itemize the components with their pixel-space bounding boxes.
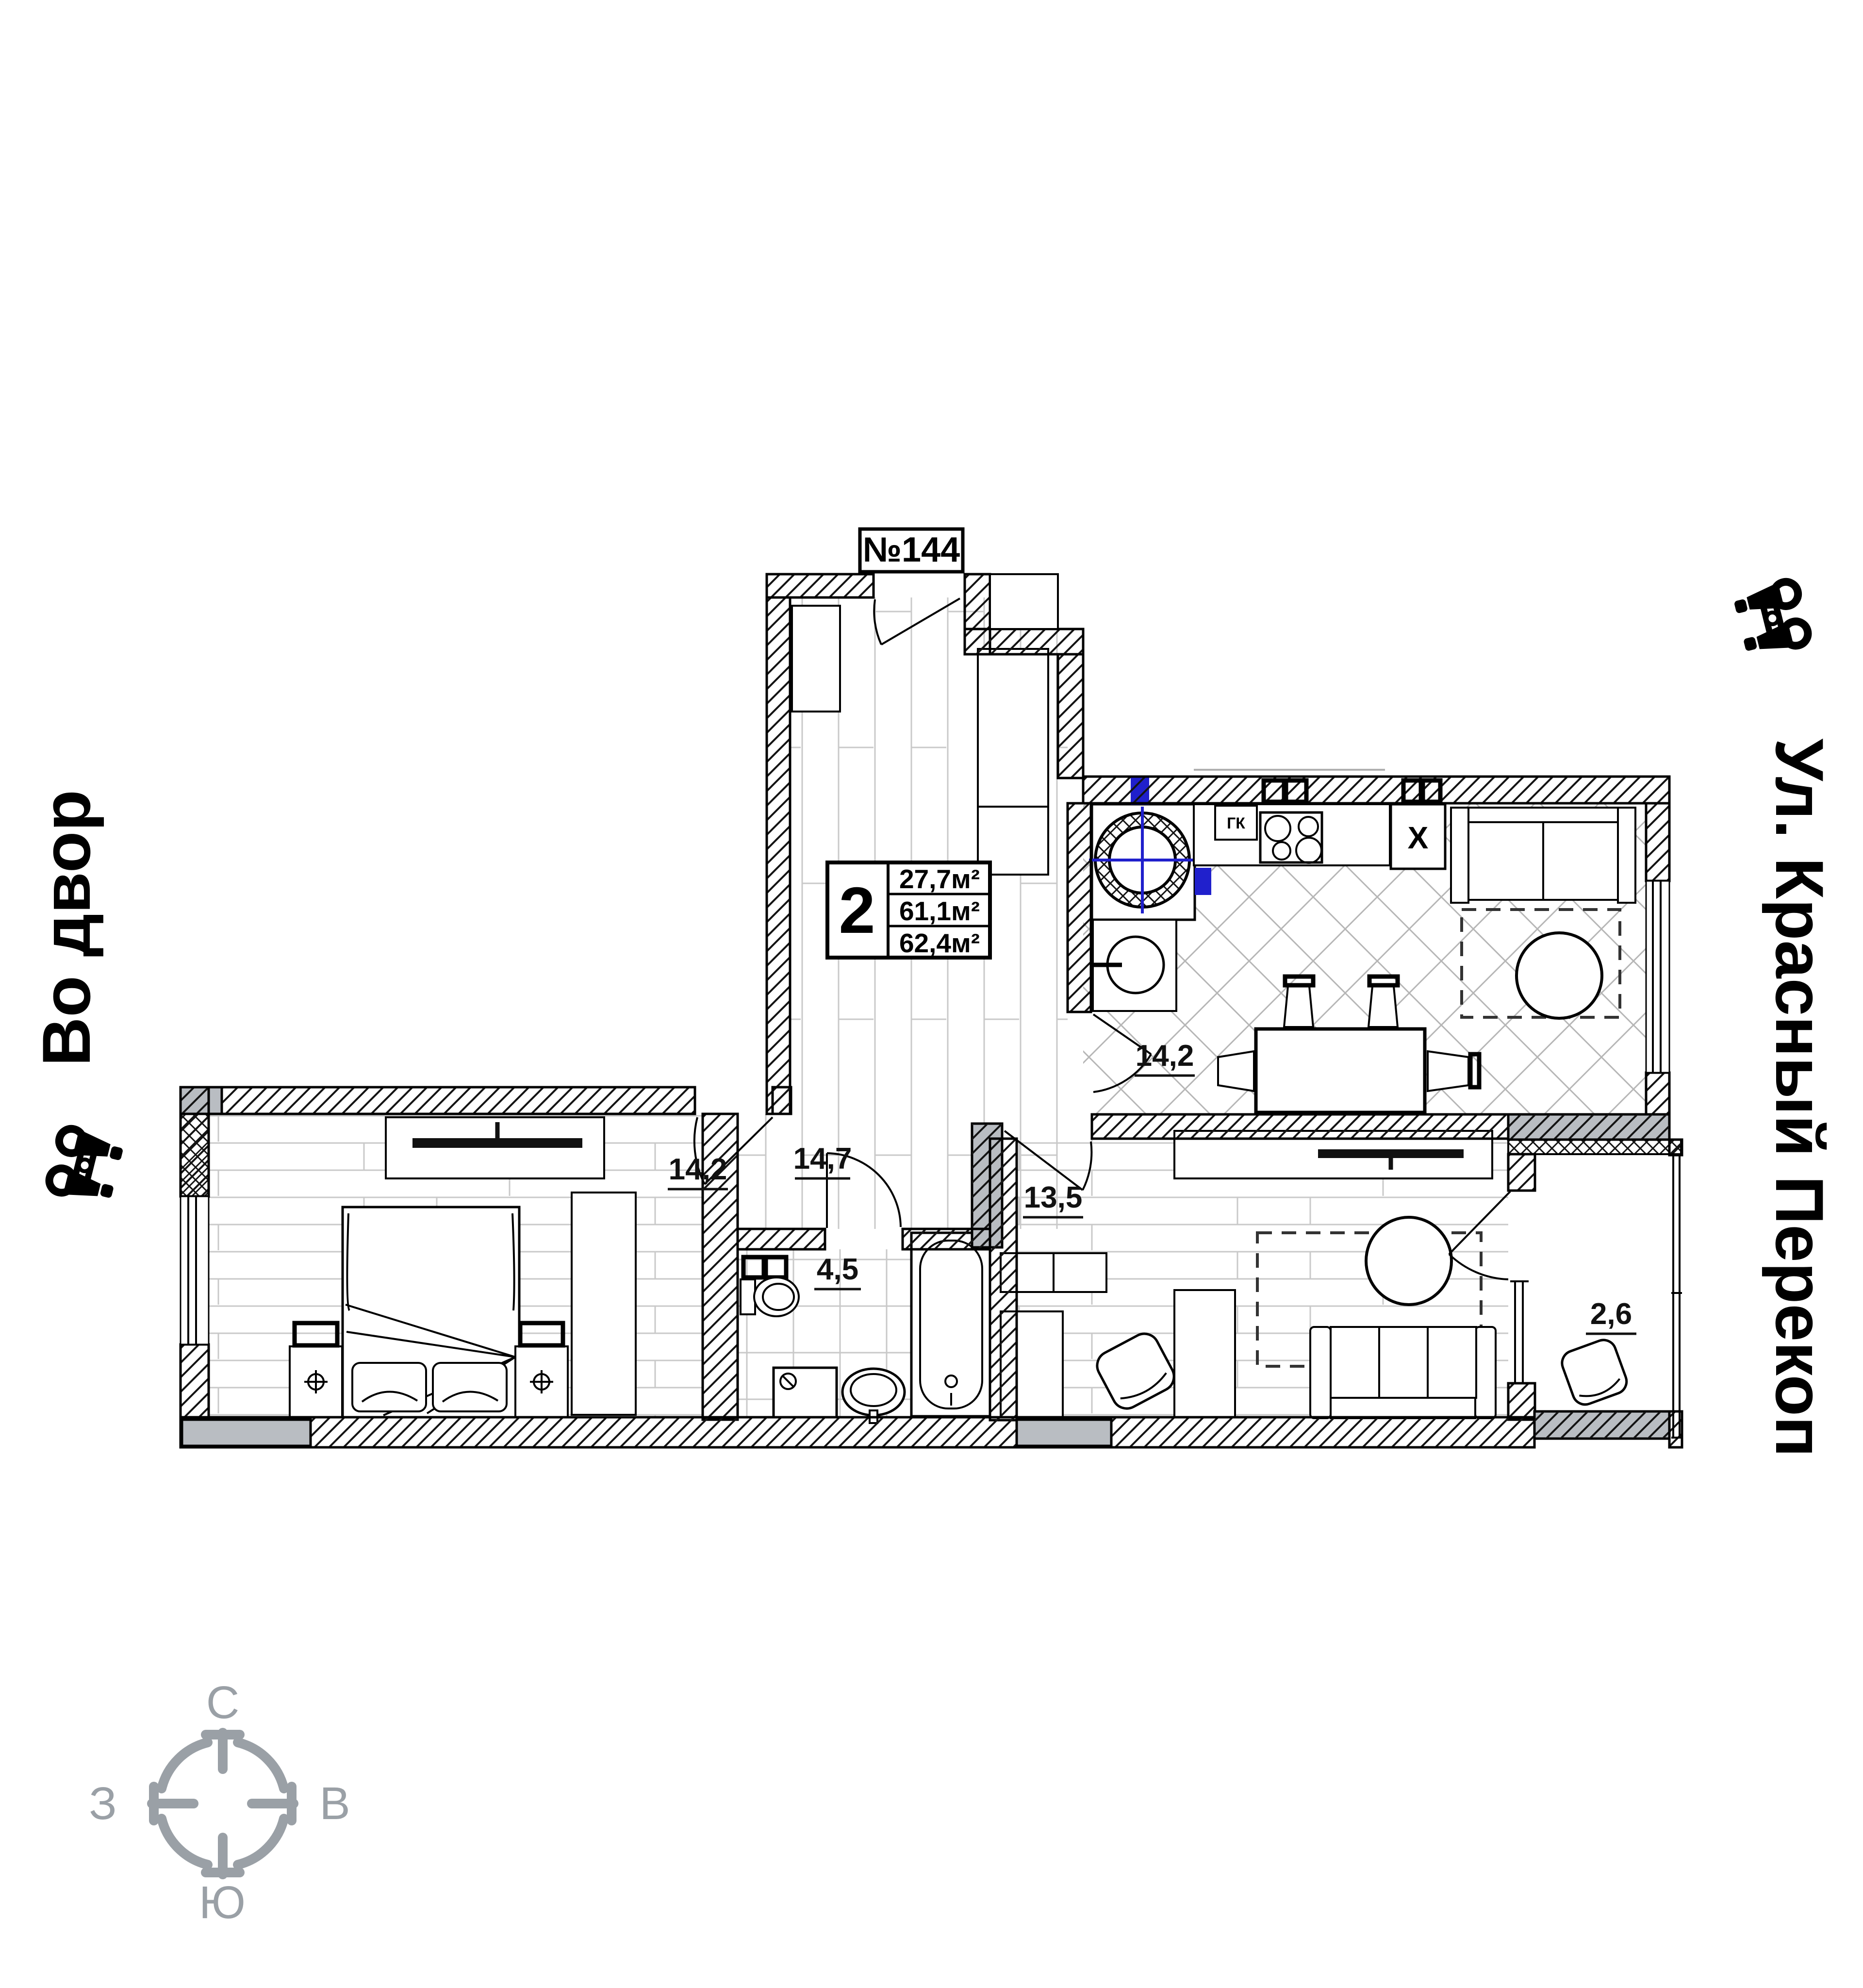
tv-bedroom [412,1138,582,1148]
apartment-number: №144 [863,530,960,569]
toilet [741,1277,799,1316]
fridge-label: X [1408,820,1429,855]
info-box: 2 27,7м² 61,1м² 62,4м² [827,862,990,958]
compass-east: В [319,1778,350,1829]
living-shelf-column [1174,1290,1235,1417]
total-area-value: 62,4м² [899,928,980,958]
area-value: 61,1м² [899,896,980,926]
gas-boiler-label: ГК [1227,814,1245,832]
hall-wardrobe-right [978,649,1048,807]
compass: С Ю З В [89,1677,350,1928]
living-area-value: 27,7м² [899,864,980,894]
binoculars-icon [1732,579,1811,659]
compass-south: Ю [199,1877,246,1928]
rooms-count: 2 [839,874,875,947]
tv-living [1318,1149,1464,1158]
living-room-area-label: 13,5 [1024,1181,1083,1214]
compass-west: З [89,1778,116,1829]
dining-chair-top-2 [1368,977,1398,1027]
bed [343,1207,519,1417]
balcony-block-window [1510,1281,1529,1383]
floor-plan-canvas: ГК X [0,0,1863,1988]
balcony-area-label: 2,6 [1590,1297,1632,1331]
bathtub [911,1233,990,1416]
dining-chair-right [1428,1051,1479,1091]
dining-chair-left [1218,1051,1254,1091]
living-oval-table [1366,1217,1451,1305]
bathroom-area-label: 4,5 [817,1253,858,1286]
living-sofa [1310,1327,1496,1418]
right-street-label: Ул. Красный Перекоп [1762,739,1838,1458]
balcony-glazing [1671,1154,1682,1438]
left-street-label: Во двор [28,790,104,1066]
kitchen-window [1646,881,1669,1073]
hall-wardrobe-left [792,606,840,712]
compass-north: С [206,1677,240,1728]
dining-table [1256,1029,1425,1112]
annotation-left: Во двор [28,790,125,1206]
bedroom-area-label: 14,2 [669,1153,727,1186]
bedroom-wardrobe [572,1193,636,1415]
apartment-number-box: №144 [860,529,963,572]
kitchen-area-label: 14,2 [1136,1039,1194,1073]
entry-niche [990,574,1058,629]
riser-blue-2 [1195,868,1211,895]
kitchen-sofa [1451,808,1635,903]
dining-chair-top-1 [1284,977,1313,1027]
washing-machine [774,1368,837,1417]
annotation-right: Ул. Красный Перекоп [1732,579,1838,1458]
binoculars-icon [47,1126,125,1206]
kitchen-round-table [1517,933,1602,1018]
hallway-area-label: 14,7 [793,1142,852,1176]
bedroom-window [181,1196,209,1344]
